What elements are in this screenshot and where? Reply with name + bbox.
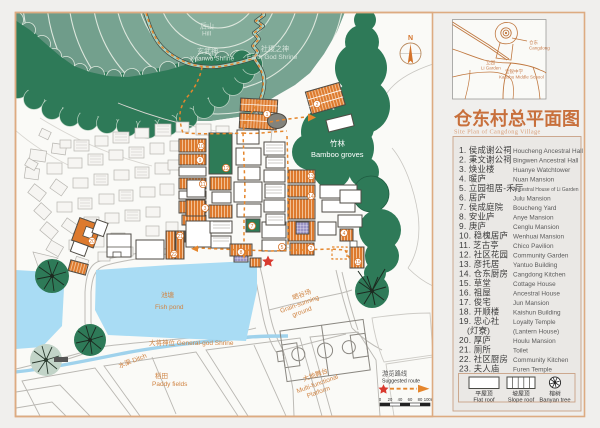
svg-text:游览路线: 游览路线 (382, 369, 408, 378)
svg-text:Cangdong: Cangdong (529, 46, 550, 51)
svg-text:1: 1 (266, 112, 269, 118)
svg-text:竹林: 竹林 (330, 138, 345, 148)
svg-text:Loyalty Temple: Loyalty Temple (513, 319, 556, 326)
svg-text:22. 社区厨房: 22. 社区厨房 (459, 354, 508, 364)
svg-text:稻田: 稻田 (155, 371, 168, 380)
svg-text:Chico Pavilion: Chico Pavilion (513, 243, 554, 250)
svg-text:Jun Mansion: Jun Mansion (513, 300, 550, 307)
svg-text:15: 15 (355, 260, 361, 266)
svg-text:4: 4 (343, 231, 346, 237)
svg-text:Slope roof: Slope roof (508, 398, 535, 404)
svg-text:19. 忠心社: 19. 忠心社 (459, 316, 500, 326)
svg-text:仓东: 仓东 (529, 39, 538, 45)
svg-text:11. 芝古亭: 11. 芝古亭 (459, 240, 499, 250)
svg-text:Boucheng Yard: Boucheng Yard (513, 205, 557, 212)
svg-text:大将神位 General-god Shrine: 大将神位 General-god Shrine (149, 338, 234, 347)
svg-text:10: 10 (198, 144, 204, 150)
svg-text:Li Garden: Li Garden (481, 66, 501, 71)
svg-text:8. 安业庐: 8. 安业庐 (459, 212, 495, 222)
svg-text:社稷之神: 社稷之神 (261, 44, 289, 53)
svg-text:Site Plan of Cangdong Village: Site Plan of Cangdong Village (454, 129, 541, 136)
svg-text:Banyan tree: Banyan tree (539, 398, 570, 404)
svg-text:4. 暖庐: 4. 暖庐 (459, 174, 486, 184)
svg-text:Bamboo groves: Bamboo groves (311, 150, 364, 159)
svg-text:12: 12 (223, 166, 229, 172)
svg-text:Fish pond: Fish pond (155, 304, 184, 311)
svg-text:Yantuo Building: Yantuo Building (513, 262, 558, 269)
svg-text:14: 14 (308, 194, 314, 200)
svg-text:Hill: Hill (202, 31, 212, 38)
svg-text:(灯寮): (灯寮) (467, 326, 490, 336)
svg-text:20: 20 (388, 397, 393, 402)
svg-text:Xuanwu Shrine: Xuanwu Shrine (190, 56, 234, 63)
svg-text:12. 社区花园: 12. 社区花园 (459, 250, 508, 260)
svg-text:6. 居庐: 6. 居庐 (459, 193, 486, 203)
svg-text:40: 40 (398, 397, 403, 402)
svg-text:3. 焕业楼: 3. 焕业楼 (459, 164, 495, 174)
svg-text:9. 庚庐: 9. 庚庐 (459, 221, 486, 231)
svg-text:9: 9 (199, 158, 202, 164)
svg-text:23. 夫人庙: 23. 夫人庙 (459, 364, 500, 374)
svg-text:Cenglu Mansion: Cenglu Mansion (513, 224, 560, 231)
svg-text:13. 彦托居: 13. 彦托居 (459, 259, 500, 269)
svg-text:Julu Mansion: Julu Mansion (513, 196, 551, 203)
svg-text:Kaoshu Middle School: Kaoshu Middle School (499, 75, 544, 80)
svg-text:Earth God Shrine: Earth God Shrine (247, 54, 298, 61)
svg-text:Kaishun Building: Kaishun Building (513, 310, 561, 317)
svg-text:Toilet: Toilet (513, 348, 528, 355)
svg-text:2. 秉文谢公祠: 2. 秉文谢公祠 (459, 155, 512, 165)
svg-text:21: 21 (177, 234, 183, 240)
svg-text:榕树: 榕树 (549, 390, 561, 398)
svg-text:Anye Mansion: Anye Mansion (513, 215, 554, 222)
svg-text:Suggested route: Suggested route (382, 379, 420, 385)
svg-text:玄武神: 玄武神 (197, 47, 218, 56)
svg-text:(Lantern House): (Lantern House) (513, 329, 559, 336)
svg-text:14. 仓东厨房: 14. 仓东厨房 (459, 269, 508, 279)
svg-text:Cottage House: Cottage House (513, 281, 556, 288)
svg-text:16. 祖屋: 16. 祖屋 (459, 288, 491, 298)
svg-text:80: 80 (418, 397, 423, 402)
svg-text:Bingwen Ancestral Hall: Bingwen Ancestral Hall (513, 158, 578, 165)
svg-text:Flat roof: Flat roof (473, 398, 495, 404)
svg-text:7: 7 (251, 224, 254, 230)
svg-text:N: N (408, 35, 413, 42)
svg-text:22: 22 (171, 252, 177, 258)
svg-text:坡屋顶: 坡屋顶 (512, 390, 530, 398)
svg-text:8: 8 (240, 250, 243, 256)
svg-text:7. 侯成庭院: 7. 侯成庭院 (459, 202, 504, 212)
svg-text:Cangdong Kitchen: Cangdong Kitchen (513, 272, 566, 279)
svg-text:Nuan Mansion: Nuan Mansion (513, 177, 555, 184)
svg-text:2: 2 (310, 246, 313, 252)
svg-text:池塘: 池塘 (161, 290, 175, 299)
svg-text:Ancestral House: Ancestral House (513, 291, 560, 298)
svg-text:Huanye Watchtower: Huanye Watchtower (513, 167, 571, 174)
svg-text:5: 5 (281, 245, 284, 251)
svg-text:平屋顶: 平屋顶 (475, 391, 493, 398)
svg-text:3: 3 (204, 206, 207, 212)
svg-text:Community Garden: Community Garden (513, 253, 569, 260)
svg-text:Wenhuai Mansion: Wenhuai Mansion (513, 234, 564, 241)
svg-text:Ancestral House of Li Garden: Ancestral House of Li Garden (513, 187, 579, 193)
svg-text:18. 开顺楼: 18. 开顺楼 (459, 307, 500, 317)
svg-text:仓东村总平面图: 仓东村总平面图 (453, 108, 580, 129)
svg-text:17. 俊宅: 17. 俊宅 (459, 297, 491, 307)
svg-text:Houcheng Ancestral Hall: Houcheng Ancestral Hall (513, 148, 583, 155)
svg-text:Community Kitchen: Community Kitchen (513, 357, 569, 364)
svg-text:Furen Temple: Furen Temple (513, 367, 552, 374)
svg-text:后山: 后山 (200, 22, 214, 31)
svg-text:15. 草堂: 15. 草堂 (459, 278, 491, 288)
svg-text:20. 厚庐: 20. 厚庐 (459, 335, 491, 345)
svg-text:60: 60 (408, 397, 413, 402)
svg-text:10. 稳槐居庐: 10. 稳槐居庐 (459, 231, 508, 241)
svg-text:20: 20 (89, 239, 95, 245)
svg-text:Paddy fields: Paddy fields (152, 381, 188, 388)
svg-text:13: 13 (308, 174, 314, 180)
svg-text:Houlu Mansion: Houlu Mansion (513, 338, 556, 345)
svg-text:2: 2 (316, 102, 319, 108)
svg-text:1. 侯成谢公祠: 1. 侯成谢公祠 (459, 145, 512, 155)
svg-text:11: 11 (200, 182, 205, 188)
svg-text:21. 厕所: 21. 厕所 (459, 345, 491, 355)
